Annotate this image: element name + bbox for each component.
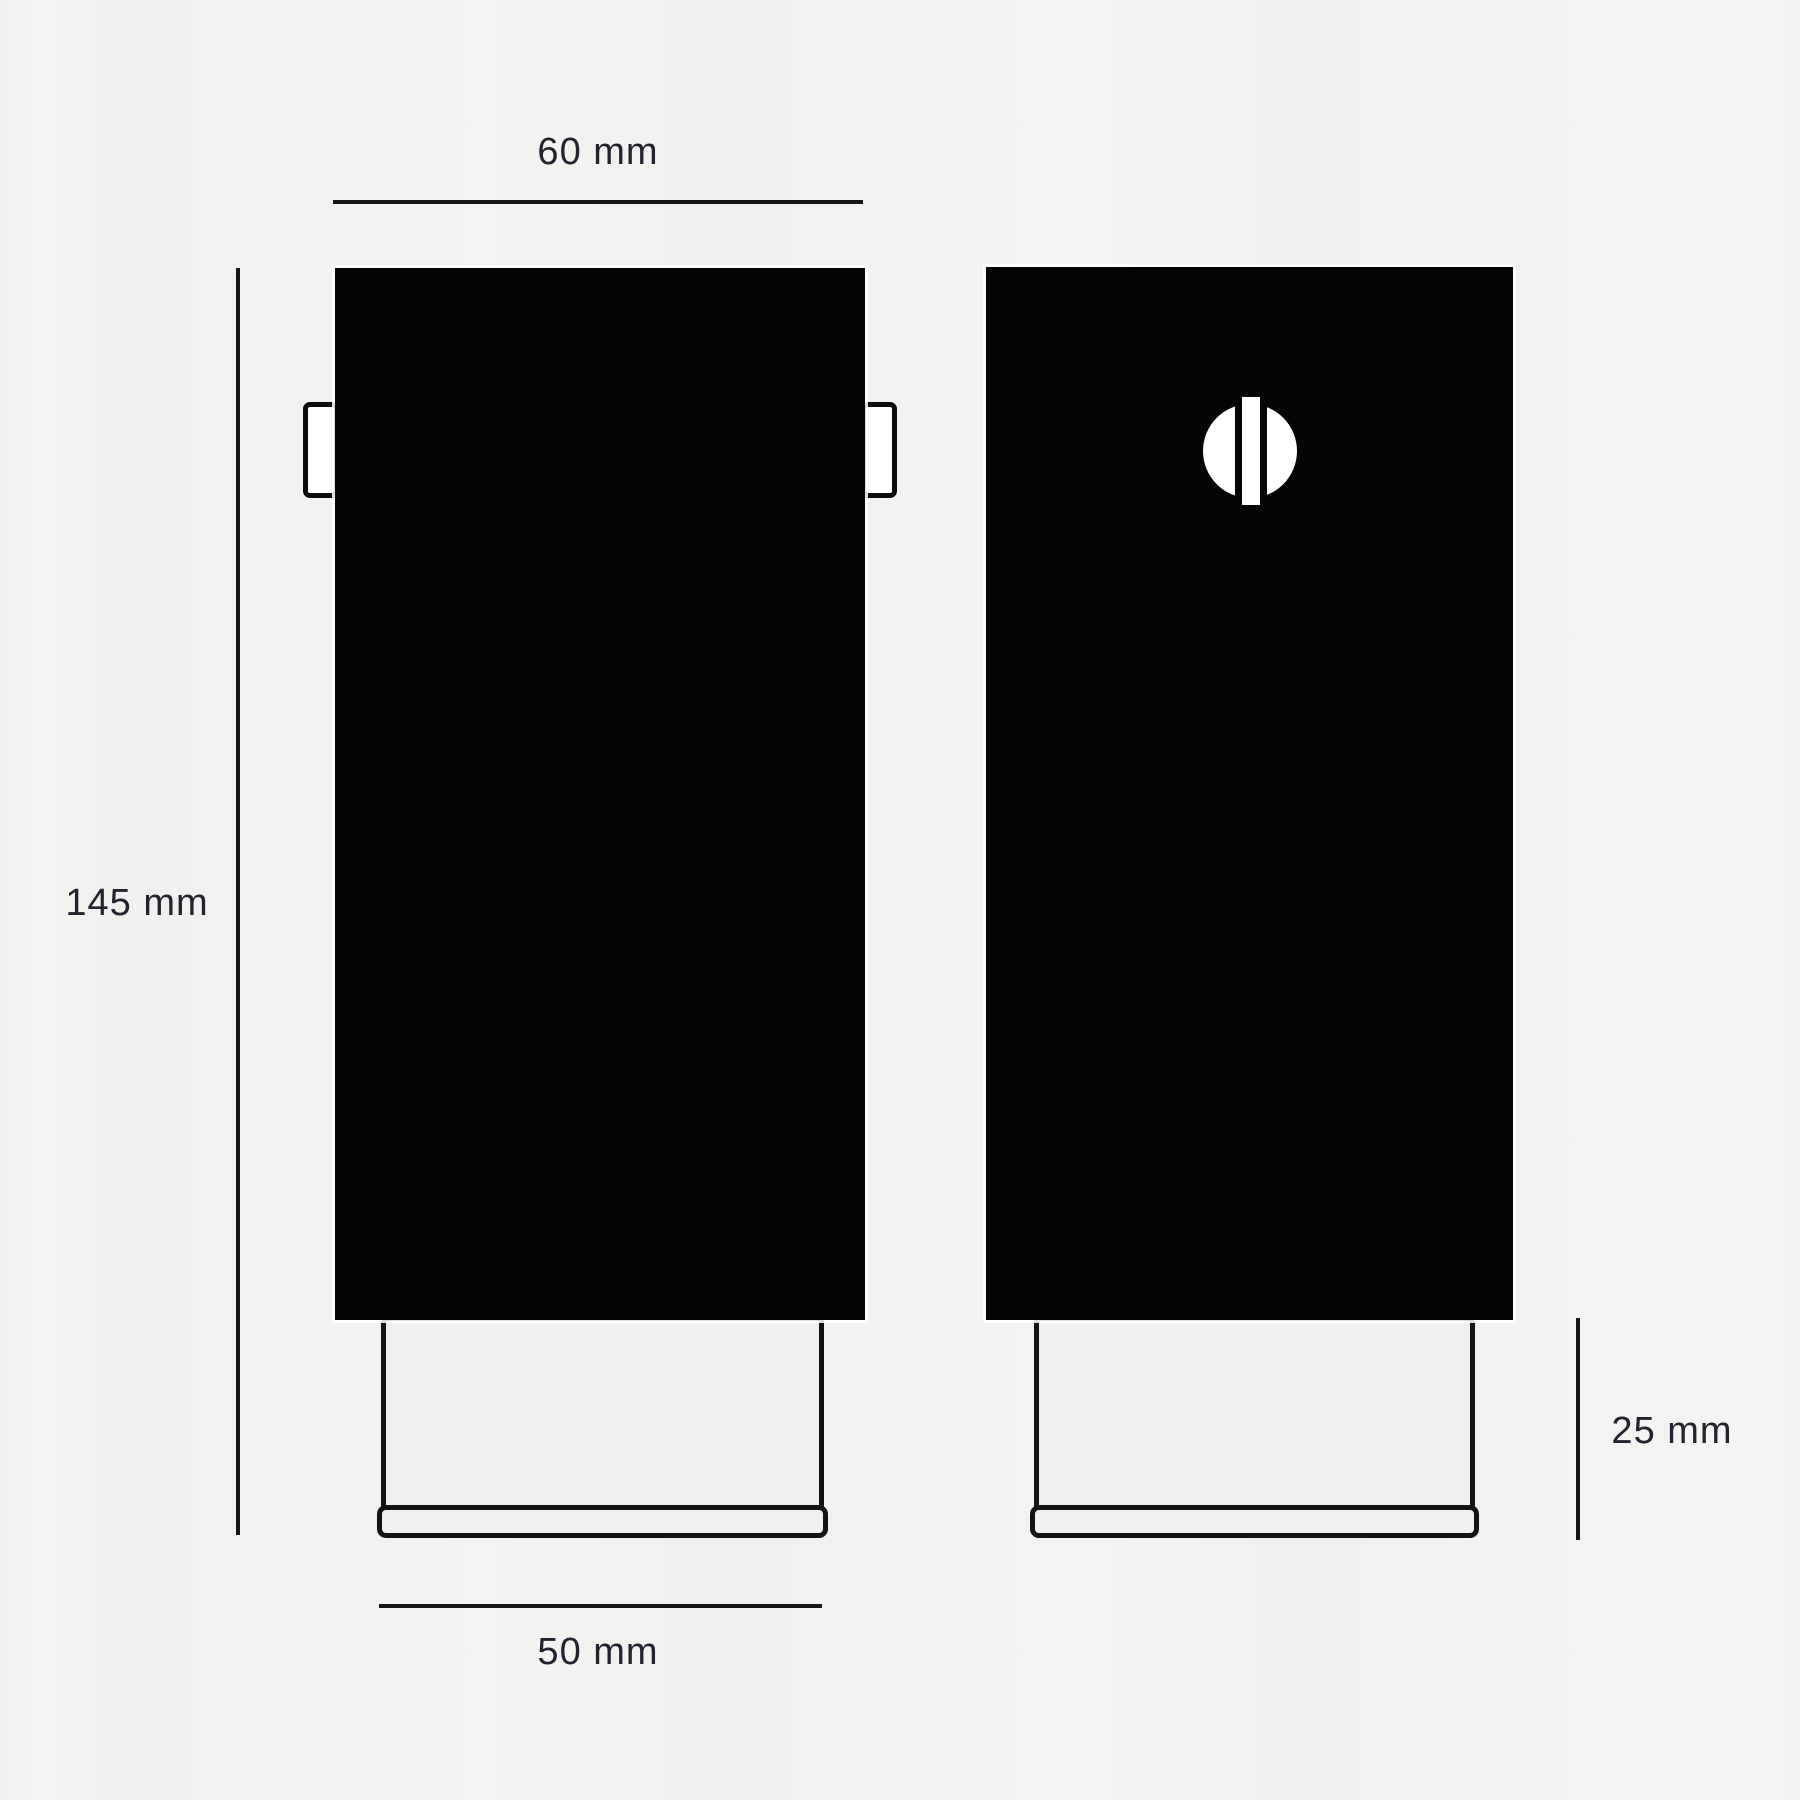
dimension-label-body-width: 60 mm [537,133,658,171]
screw-slot-detail [1235,397,1267,505]
dimension-line-body-width [333,200,863,204]
dimension-line-base-height [1576,1318,1580,1540]
dimension-label-total-height: 145 mm [65,884,208,922]
dimension-label-base-height: 25 mm [1611,1412,1732,1450]
side-tab-left [303,402,339,498]
front-view-base [381,1316,824,1510]
dimension-label-base-width: 50 mm [537,1633,658,1671]
diagram-canvas: 60 mm 145 mm 50 mm 25 mm [0,0,1800,1800]
side-tab-right [861,402,897,498]
front-view-base-plate [377,1505,828,1538]
front-view-body [335,268,865,1320]
side-view-base-plate [1030,1505,1479,1538]
dimension-line-base-width [379,1604,822,1608]
side-view-base [1034,1316,1475,1510]
dimension-line-total-height [236,268,240,1535]
